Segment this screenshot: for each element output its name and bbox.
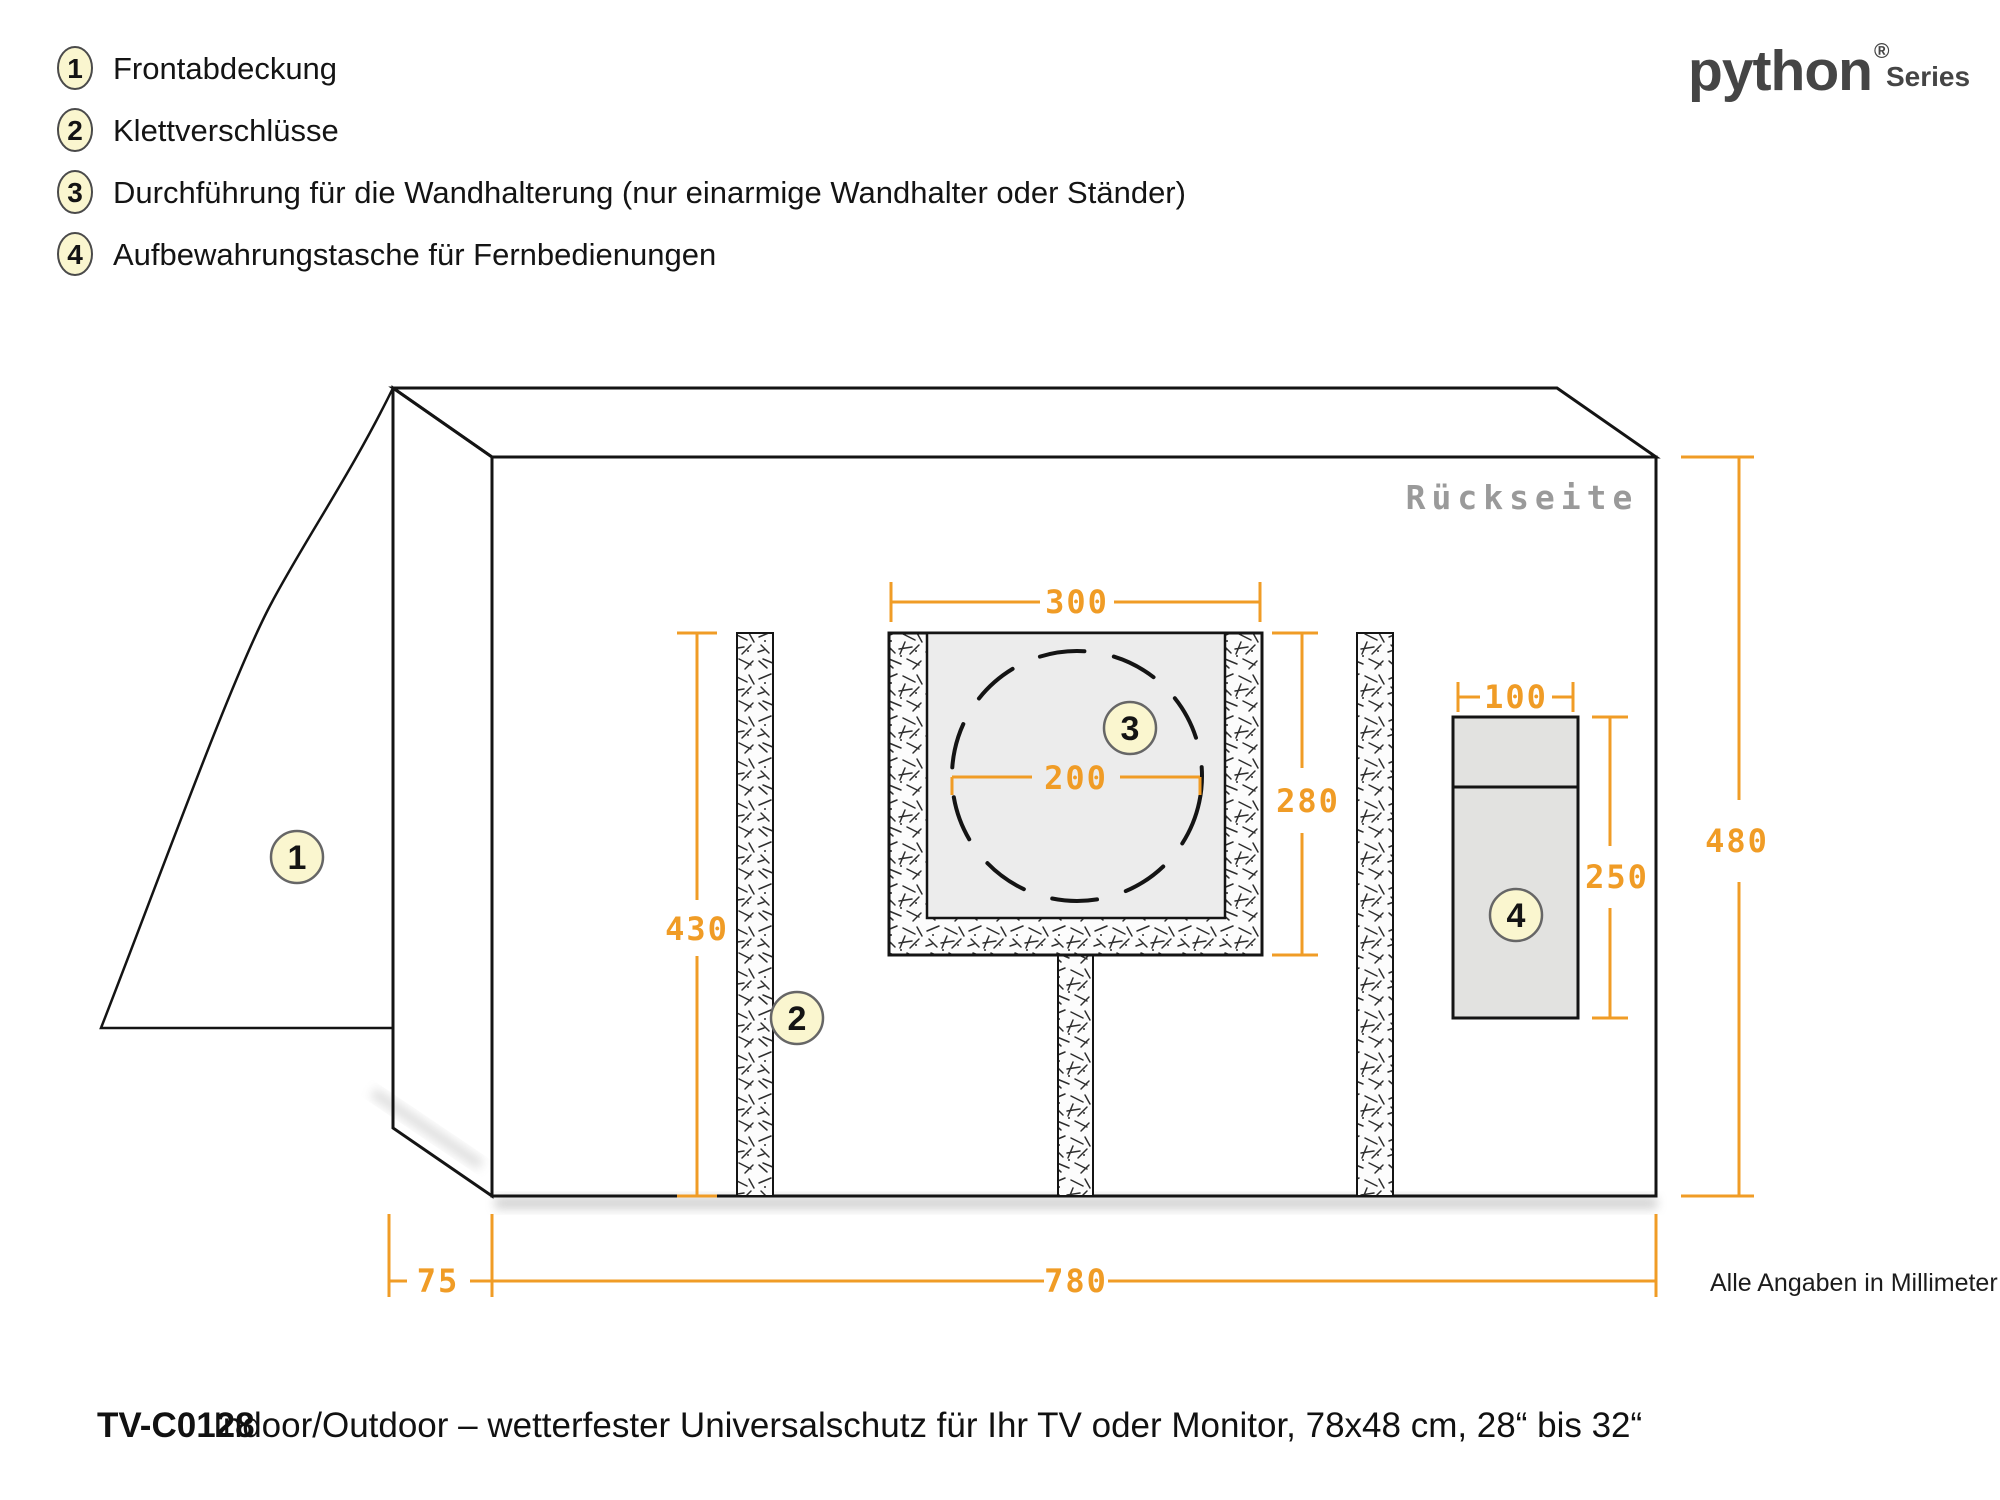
dim-pocket-height-value: 250 bbox=[1585, 858, 1649, 896]
units-note: Alle Angaben in Millimeter bbox=[1710, 1269, 1998, 1297]
legend-number-4: 4 bbox=[67, 239, 83, 270]
legend-label-4: Aufbewahrungstasche für Fernbedienungen bbox=[113, 237, 716, 272]
legend-number-3: 3 bbox=[67, 177, 83, 208]
box-shadow bbox=[495, 1197, 1657, 1209]
footer-description: Indoor/Outdoor – wetterfester Universals… bbox=[213, 1406, 1642, 1445]
legend-label-2: Klettverschlüsse bbox=[113, 113, 339, 148]
callout-number-4: 4 bbox=[1507, 897, 1526, 935]
dim-side-depth-and-cover-width: 75 780 bbox=[389, 1214, 1656, 1300]
dim-cover-height-value: 480 bbox=[1705, 822, 1769, 860]
dim-pocket-height: 250 bbox=[1585, 717, 1649, 1018]
backside-label: Rückseite bbox=[1406, 478, 1639, 517]
front-cover-flap bbox=[101, 388, 393, 1028]
legend-label-1: Frontabdeckung bbox=[113, 51, 337, 86]
legend-label-3: Durchführung für die Wandhalterung (nur … bbox=[113, 175, 1186, 210]
dim-opening-height: 280 bbox=[1272, 633, 1340, 955]
dim-cover-width-value: 780 bbox=[1044, 1262, 1108, 1300]
brand-logo: python ® Series bbox=[1688, 39, 1970, 103]
callout-number-3: 3 bbox=[1121, 710, 1140, 748]
dim-opening-width: 300 bbox=[891, 582, 1260, 622]
dim-cover-height: 480 bbox=[1681, 457, 1769, 1196]
legend-item-1: 1 Frontabdeckung bbox=[58, 47, 337, 89]
dim-side-depth-value: 75 bbox=[417, 1262, 460, 1300]
flap-shadow bbox=[370, 1088, 483, 1169]
callout-number-2: 2 bbox=[788, 1000, 807, 1038]
brand-series: Series bbox=[1886, 61, 1970, 92]
legend-number-1: 1 bbox=[67, 53, 83, 84]
brand-wordmark: python bbox=[1688, 39, 1872, 103]
product-diagram-page: 1 Frontabdeckung 2 Klettverschlüsse 3 Du… bbox=[0, 0, 2000, 1500]
dim-velcro-length: 430 bbox=[665, 633, 729, 1196]
callout-remote-pocket: 4 bbox=[1490, 889, 1542, 941]
registered-mark-icon: ® bbox=[1874, 40, 1890, 63]
callout-number-1: 1 bbox=[288, 839, 307, 877]
velcro-strip-left bbox=[737, 633, 773, 1196]
legend-item-2: 2 Klettverschlüsse bbox=[58, 109, 339, 151]
footer-title: TV-C0128 Indoor/Outdoor – wetterfester U… bbox=[97, 1406, 1642, 1445]
legend-number-2: 2 bbox=[67, 115, 83, 146]
remote-pocket bbox=[1453, 717, 1578, 1018]
callout-velcro: 2 bbox=[771, 992, 823, 1044]
cover-side-face bbox=[393, 388, 492, 1196]
cover-top-face bbox=[393, 388, 1656, 457]
callout-wall-mount-opening: 3 bbox=[1104, 702, 1156, 754]
dim-pocket-width-value: 100 bbox=[1484, 678, 1548, 716]
legend: 1 Frontabdeckung 2 Klettverschlüsse 3 Du… bbox=[58, 47, 1186, 275]
pocket-body bbox=[1453, 717, 1578, 1018]
dim-circle-diameter-value: 200 bbox=[1044, 759, 1108, 797]
callout-front-cover: 1 bbox=[271, 831, 323, 883]
velcro-strip-center bbox=[1058, 955, 1093, 1196]
dim-velcro-length-value: 430 bbox=[665, 910, 729, 948]
cover-drawing: Rückseite 1 2 3 4 bbox=[101, 388, 1998, 1300]
legend-item-4: 4 Aufbewahrungstasche für Fernbedienunge… bbox=[58, 233, 716, 275]
velcro-strip-right bbox=[1357, 633, 1393, 1196]
dim-opening-height-value: 280 bbox=[1276, 782, 1340, 820]
dim-pocket-width: 100 bbox=[1458, 678, 1573, 716]
dim-opening-width-value: 300 bbox=[1045, 583, 1109, 621]
legend-item-3: 3 Durchführung für die Wandhalterung (nu… bbox=[58, 171, 1186, 213]
